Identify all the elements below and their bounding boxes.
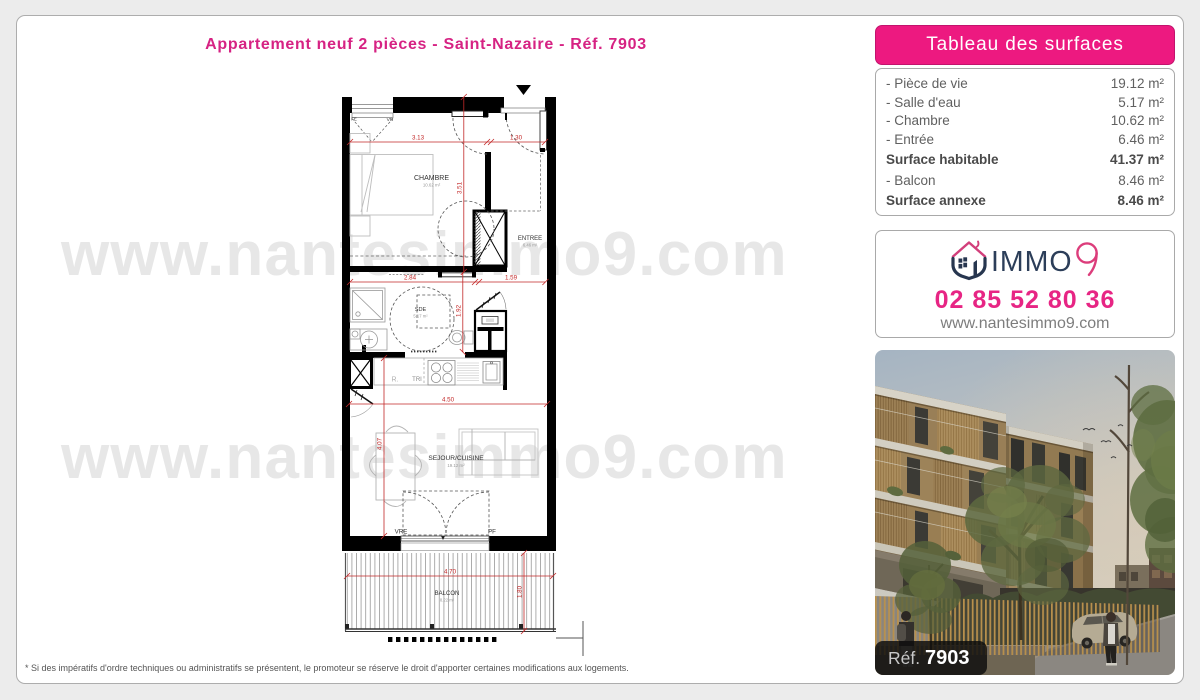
svg-text:BALCON: BALCON <box>435 591 460 597</box>
svg-text:5.17 m²: 5.17 m² <box>413 314 428 319</box>
svg-text:1.59: 1.59 <box>505 275 518 282</box>
svg-text:R.: R. <box>392 377 399 384</box>
svg-text:SEJOUR/CUISINE: SEJOUR/CUISINE <box>428 455 484 462</box>
svg-text:4.07: 4.07 <box>377 437 384 450</box>
svg-text:10.62 m²: 10.62 m² <box>423 183 441 188</box>
svg-text:1.80: 1.80 <box>517 585 524 598</box>
svg-text:6.46 m²: 6.46 m² <box>523 243 538 248</box>
svg-text:1.30: 1.30 <box>510 135 523 142</box>
svg-text:ENTREE: ENTREE <box>518 236 542 242</box>
svg-text:VRE: VRE <box>395 529 408 536</box>
svg-text:SDE: SDE <box>415 307 427 313</box>
svg-text:1.92: 1.92 <box>456 304 463 317</box>
svg-text:4.50: 4.50 <box>442 397 455 404</box>
svg-text:2.84: 2.84 <box>404 275 417 282</box>
svg-text:CHAMBRE: CHAMBRE <box>414 175 449 182</box>
svg-text:FE: FE <box>351 117 357 122</box>
svg-text:3.51: 3.51 <box>457 181 464 194</box>
svg-text:IMMO: IMMO <box>991 246 1073 278</box>
svg-text:PF: PF <box>488 529 496 536</box>
svg-text:4.70: 4.70 <box>444 569 457 576</box>
svg-text:Réf. 7903: Réf. 7903 <box>888 647 969 669</box>
svg-text:VR: VR <box>387 117 394 123</box>
svg-text:3.13: 3.13 <box>412 135 425 142</box>
svg-text:19.12 m²: 19.12 m² <box>447 463 465 468</box>
svg-text:8.22 m²: 8.22 m² <box>440 598 455 603</box>
svg-text:TRI: TRI <box>412 377 422 383</box>
